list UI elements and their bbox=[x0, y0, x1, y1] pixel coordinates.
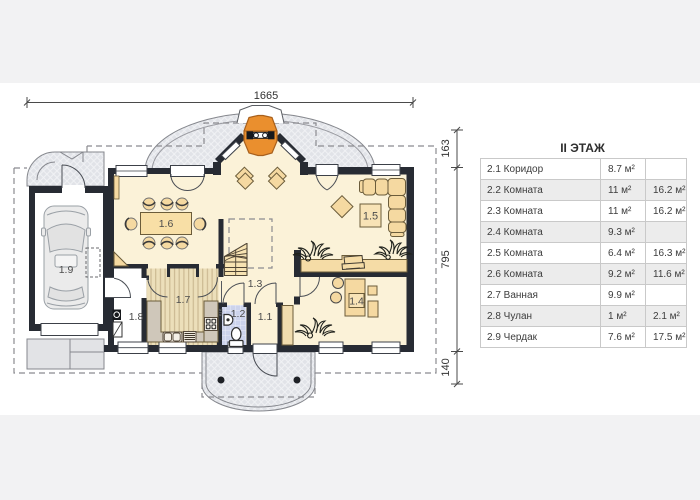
svg-text:1.4: 1.4 bbox=[349, 296, 364, 308]
svg-text:163: 163 bbox=[440, 139, 452, 157]
svg-text:1665: 1665 bbox=[254, 90, 278, 102]
svg-text:1.1: 1.1 bbox=[258, 311, 273, 323]
svg-text:515: 515 bbox=[219, 308, 224, 316]
svg-text:1.7: 1.7 bbox=[176, 294, 191, 306]
svg-text:1.6: 1.6 bbox=[159, 218, 174, 230]
svg-text:140: 140 bbox=[440, 358, 452, 376]
svg-text:795: 795 bbox=[440, 250, 452, 268]
svg-text:1.9: 1.9 bbox=[59, 264, 74, 276]
svg-text:1.3: 1.3 bbox=[248, 278, 263, 290]
svg-text:1.2: 1.2 bbox=[231, 308, 246, 320]
svg-text:1.5: 1.5 bbox=[363, 211, 378, 223]
svg-text:1.8: 1.8 bbox=[129, 311, 144, 323]
